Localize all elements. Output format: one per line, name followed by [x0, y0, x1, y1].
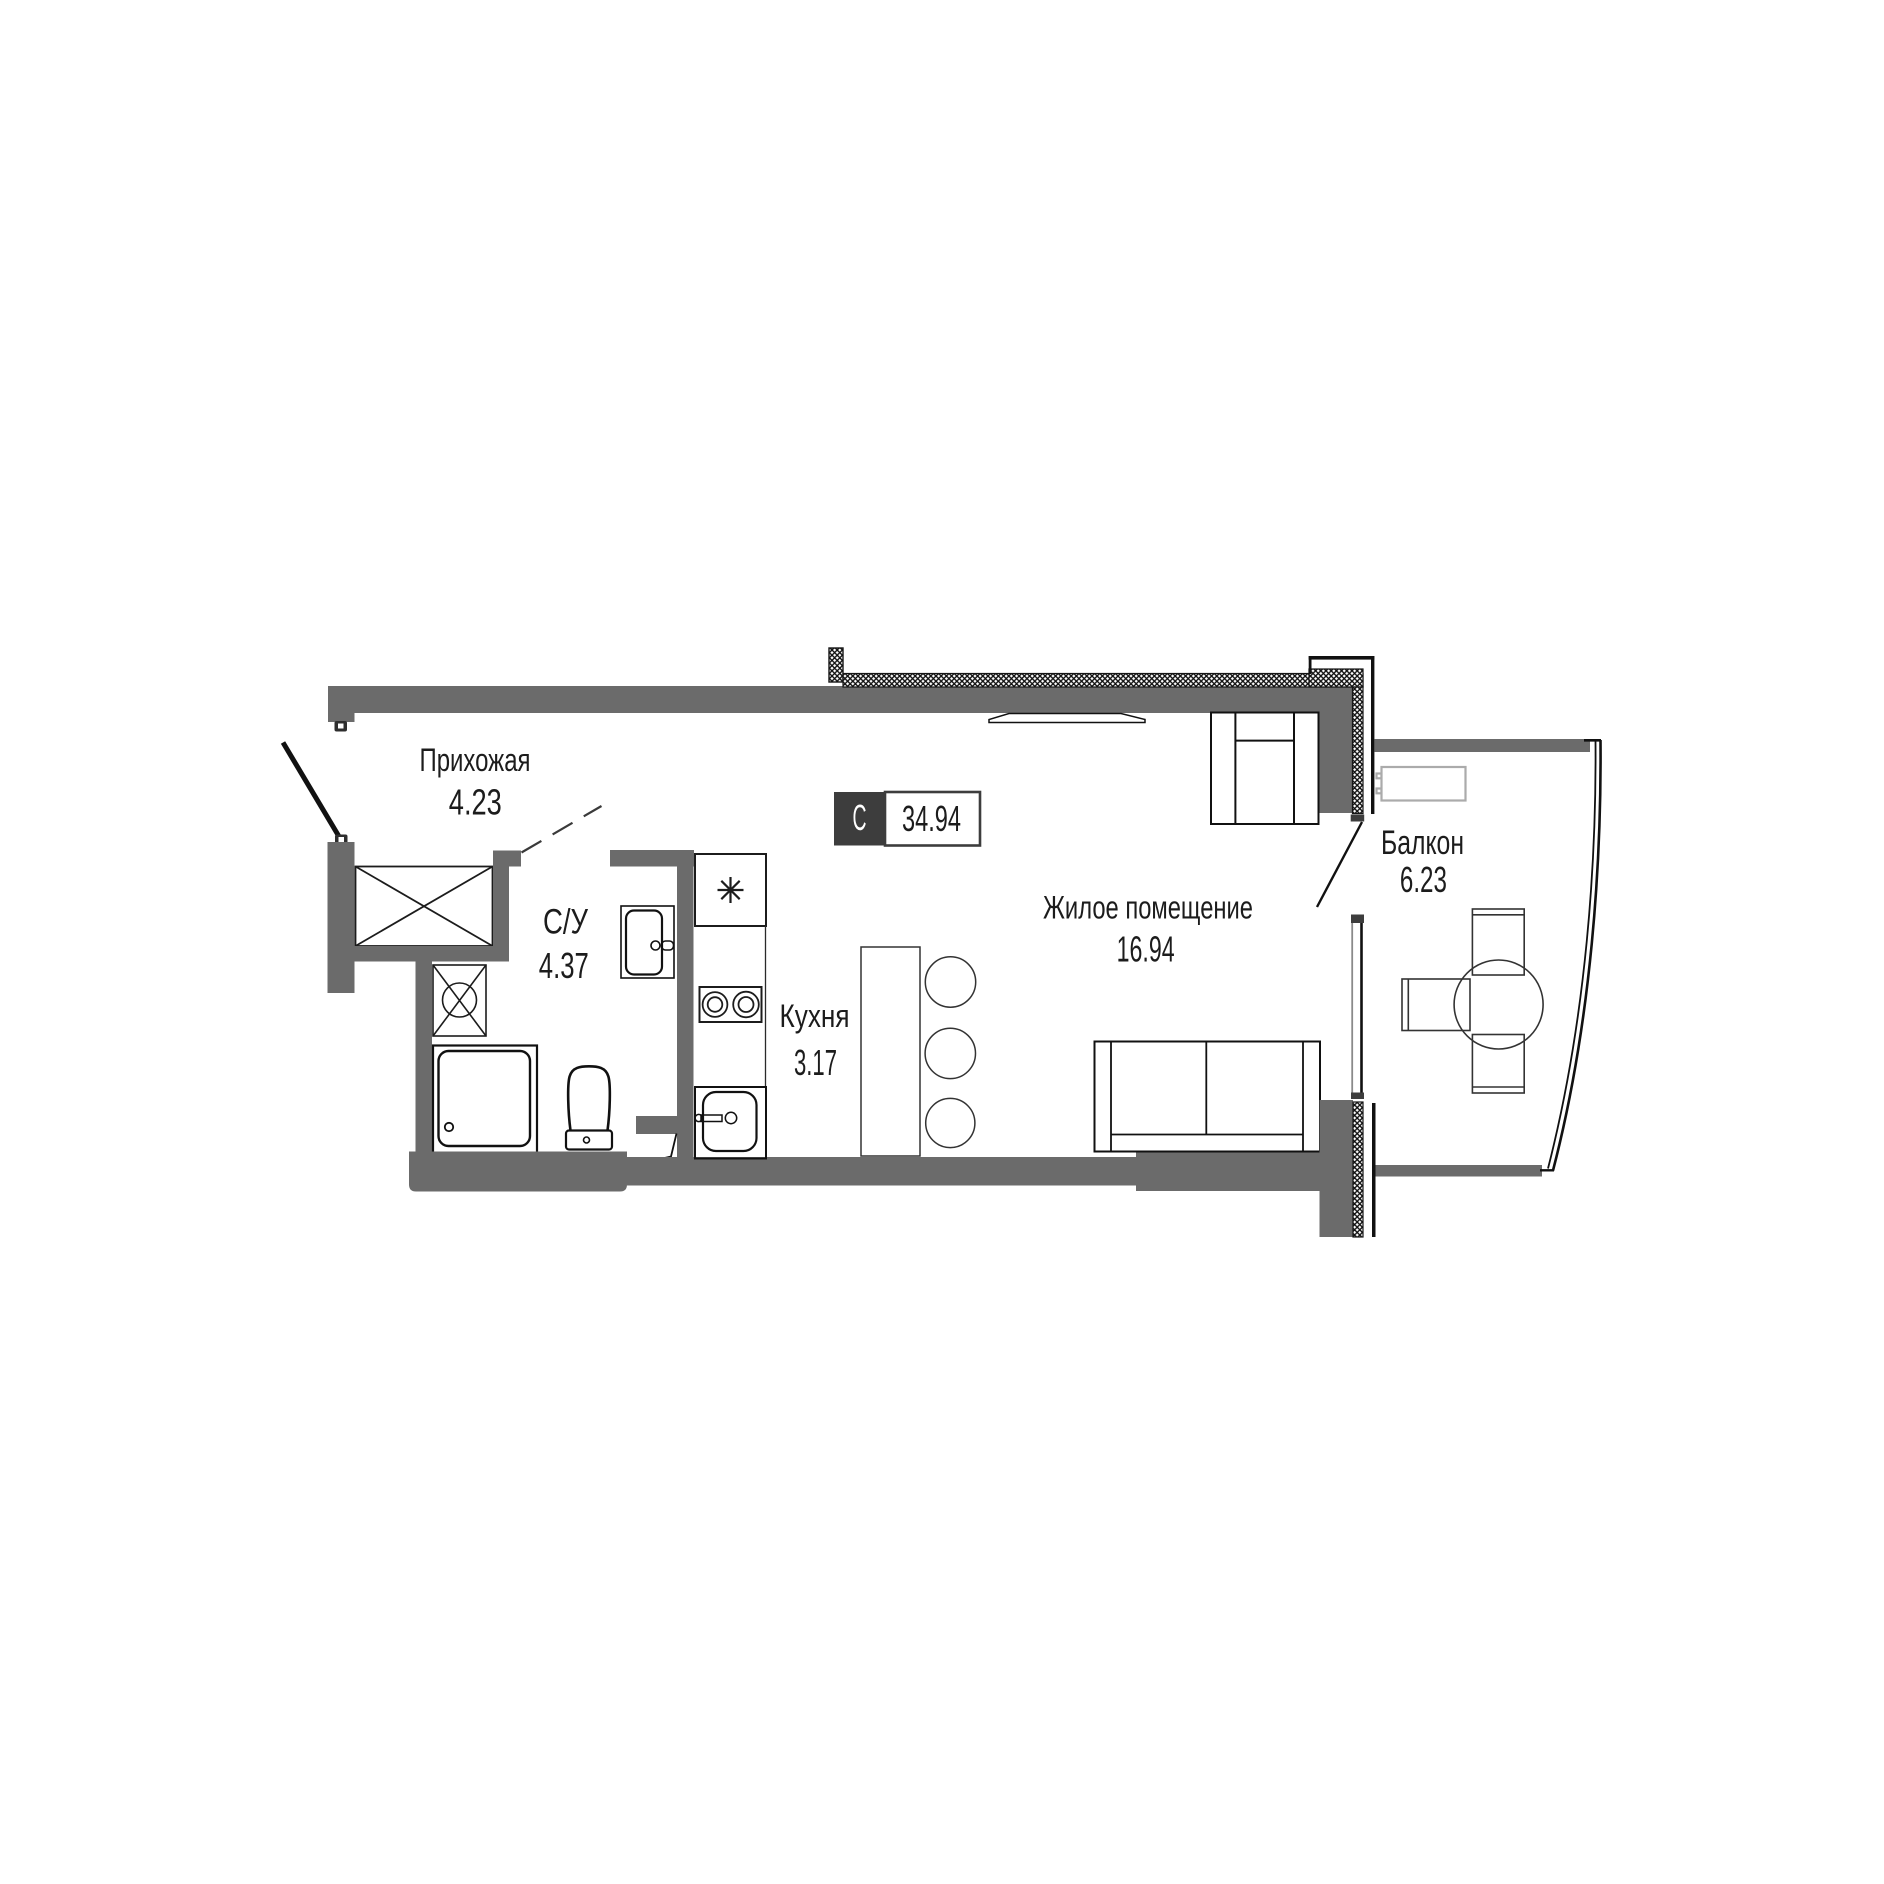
svg-text:34.94: 34.94: [902, 798, 961, 839]
svg-text:Балкон: Балкон: [1381, 824, 1464, 862]
svg-text:4.37: 4.37: [539, 945, 589, 986]
svg-text:Кухня: Кухня: [780, 998, 850, 1034]
svg-text:16.94: 16.94: [1117, 929, 1175, 970]
svg-text:Жилое помещение: Жилое помещение: [1043, 890, 1253, 926]
svg-text:С: С: [853, 797, 867, 838]
svg-text:4.23: 4.23: [449, 782, 502, 823]
svg-text:3.17: 3.17: [794, 1042, 837, 1083]
svg-text:С/У: С/У: [543, 903, 589, 942]
svg-text:Прихожая: Прихожая: [420, 742, 531, 778]
svg-text:6.23: 6.23: [1400, 859, 1447, 900]
